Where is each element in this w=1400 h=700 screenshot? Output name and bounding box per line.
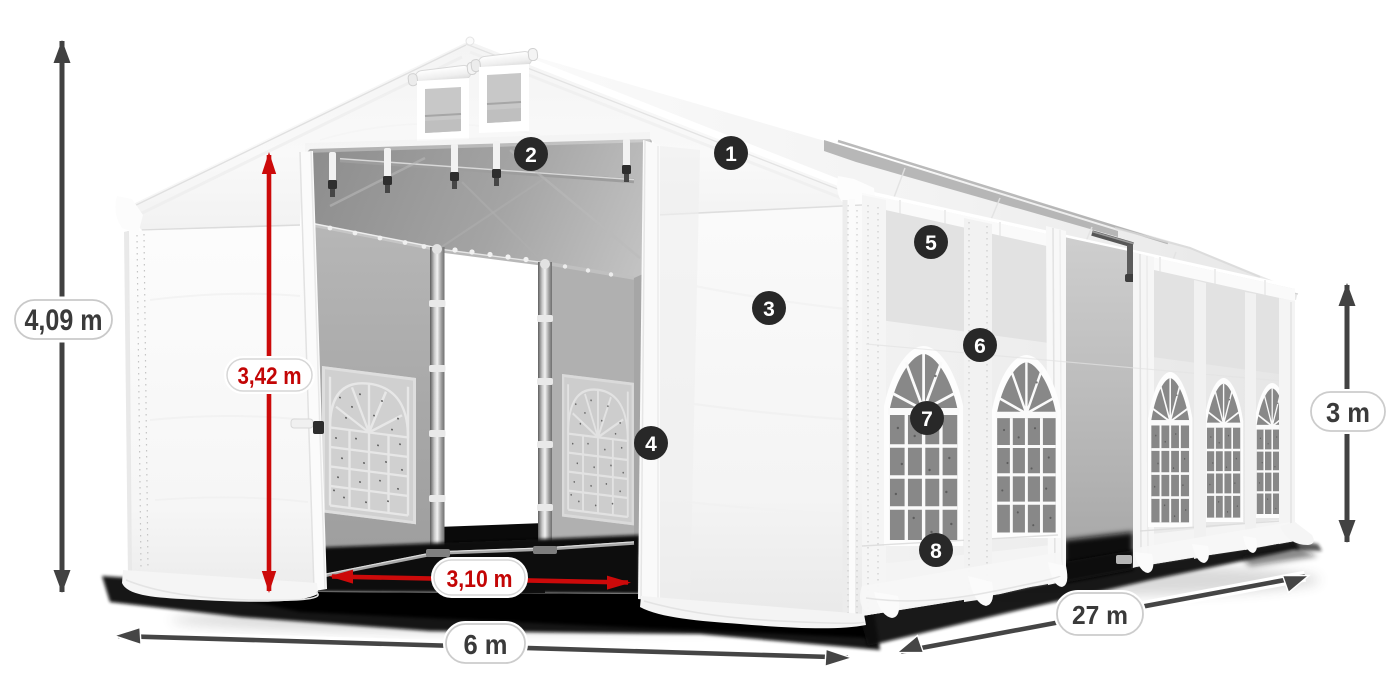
svg-text:3 m: 3 m [1326, 397, 1370, 428]
svg-text:1: 1 [725, 143, 737, 166]
svg-text:3,10 m: 3,10 m [447, 566, 513, 593]
svg-text:2: 2 [525, 144, 537, 167]
svg-text:6 m: 6 m [464, 629, 508, 660]
svg-text:27 m: 27 m [1072, 600, 1128, 630]
svg-text:3: 3 [763, 298, 775, 321]
svg-text:4: 4 [645, 433, 657, 456]
svg-text:7: 7 [921, 408, 933, 431]
svg-text:8: 8 [930, 540, 942, 563]
svg-text:4,09 m: 4,09 m [25, 304, 103, 337]
svg-text:6: 6 [974, 335, 986, 358]
svg-text:3,42 m: 3,42 m [238, 363, 302, 390]
svg-text:5: 5 [925, 232, 937, 255]
